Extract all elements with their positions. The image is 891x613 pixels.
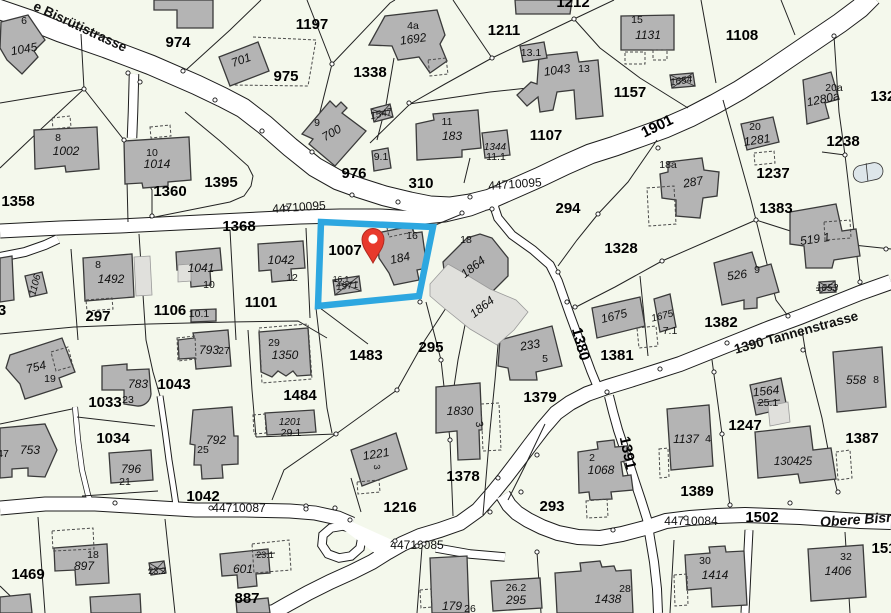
svg-text:7.1: 7.1: [663, 325, 678, 337]
svg-text:1387: 1387: [845, 430, 878, 447]
svg-text:8: 8: [55, 132, 61, 144]
svg-text:44710087: 44710087: [212, 501, 266, 515]
svg-text:1137: 1137: [673, 432, 700, 446]
svg-text:1108: 1108: [726, 27, 759, 44]
svg-text:558: 558: [846, 373, 866, 387]
svg-text:1379: 1379: [523, 389, 556, 406]
svg-text:1382: 1382: [704, 314, 737, 331]
svg-text:1406: 1406: [825, 564, 852, 578]
svg-text:1329: 1329: [870, 88, 891, 105]
svg-text:1653: 1653: [816, 283, 839, 294]
svg-text:3: 3: [372, 464, 382, 470]
svg-text:44710084: 44710084: [664, 514, 718, 528]
svg-text:1389: 1389: [680, 483, 713, 500]
svg-text:1350: 1350: [272, 348, 299, 362]
svg-text:32: 32: [840, 551, 852, 563]
svg-text:18: 18: [460, 234, 472, 246]
svg-text:1157: 1157: [614, 84, 647, 101]
svg-text:9: 9: [314, 117, 320, 129]
svg-text:26: 26: [464, 603, 476, 613]
svg-text:1216: 1216: [383, 499, 416, 516]
svg-text:295: 295: [418, 339, 443, 356]
svg-text:21: 21: [119, 476, 131, 488]
svg-text:23.2: 23.2: [148, 566, 166, 576]
svg-text:13: 13: [578, 63, 590, 75]
svg-text:1043: 1043: [157, 376, 190, 393]
svg-text:12: 12: [286, 272, 298, 284]
svg-text:1247: 1247: [728, 417, 761, 434]
svg-text:1197: 1197: [296, 16, 329, 33]
svg-text:1358: 1358: [1, 193, 34, 210]
svg-text:6: 6: [21, 15, 27, 27]
svg-text:5: 5: [542, 353, 548, 365]
svg-text:8: 8: [95, 259, 101, 271]
svg-text:295: 295: [505, 593, 526, 607]
svg-text:20: 20: [749, 121, 761, 133]
svg-text:887: 887: [234, 590, 259, 607]
svg-text:1007: 1007: [328, 242, 361, 259]
svg-text:1378: 1378: [446, 468, 479, 485]
svg-text:783: 783: [128, 377, 148, 391]
svg-text:1237: 1237: [756, 165, 789, 182]
svg-text:29.1: 29.1: [281, 427, 302, 439]
svg-text:1328: 1328: [604, 240, 637, 257]
svg-text:297: 297: [85, 308, 110, 325]
svg-text:10: 10: [203, 279, 215, 291]
svg-text:1338: 1338: [353, 64, 386, 81]
svg-text:11: 11: [442, 116, 453, 128]
svg-text:1212: 1212: [556, 0, 589, 11]
svg-text:1469: 1469: [11, 566, 44, 583]
svg-text:3: 3: [0, 302, 6, 319]
svg-text:27: 27: [218, 345, 230, 357]
svg-text:1068: 1068: [588, 463, 615, 477]
svg-text:16: 16: [406, 230, 418, 242]
svg-text:1414: 1414: [702, 568, 729, 582]
svg-text:1368: 1368: [222, 218, 255, 235]
svg-text:1502: 1502: [745, 509, 778, 526]
svg-text:1238: 1238: [826, 133, 859, 150]
svg-text:9: 9: [754, 264, 760, 276]
svg-text:1381: 1381: [600, 347, 633, 364]
svg-text:1131: 1131: [635, 28, 661, 42]
svg-text:1042: 1042: [268, 253, 295, 267]
svg-text:25.1: 25.1: [758, 397, 779, 409]
svg-text:1211: 1211: [488, 22, 521, 39]
svg-text:792: 792: [206, 433, 226, 447]
svg-text:1106: 1106: [154, 302, 187, 319]
svg-text:976: 976: [341, 165, 366, 182]
svg-text:16.1: 16.1: [333, 274, 350, 284]
svg-text:1033: 1033: [88, 394, 121, 411]
svg-text:9.1: 9.1: [374, 151, 389, 163]
svg-text:1830: 1830: [447, 404, 474, 418]
svg-text:25: 25: [197, 444, 209, 456]
svg-text:11.1: 11.1: [486, 151, 506, 163]
svg-text:293: 293: [539, 498, 564, 515]
svg-text:1014: 1014: [144, 157, 171, 171]
svg-text:1395: 1395: [204, 174, 237, 191]
svg-text:1383: 1383: [759, 200, 792, 217]
svg-text:10.1: 10.1: [189, 308, 210, 320]
svg-text:183: 183: [442, 129, 462, 143]
svg-text:310: 310: [408, 175, 433, 192]
svg-text:13.1: 13.1: [521, 47, 542, 59]
svg-text:19: 19: [44, 373, 56, 385]
svg-text:1041: 1041: [188, 261, 215, 275]
svg-text:151: 151: [871, 540, 891, 557]
svg-text:18a: 18a: [659, 159, 677, 171]
svg-text:4: 4: [705, 433, 711, 445]
svg-text:1002: 1002: [53, 144, 80, 158]
svg-text:294: 294: [555, 200, 581, 217]
svg-text:30: 30: [699, 555, 711, 567]
svg-text:1360: 1360: [153, 183, 186, 200]
svg-text:1483: 1483: [349, 347, 382, 364]
svg-text:15: 15: [631, 14, 643, 26]
svg-text:897: 897: [74, 559, 95, 573]
svg-text:526: 526: [726, 267, 748, 284]
svg-text:130425: 130425: [774, 456, 813, 468]
svg-text:4a: 4a: [407, 20, 419, 32]
svg-text:796: 796: [121, 462, 141, 476]
svg-text:1484: 1484: [283, 387, 317, 404]
svg-text:8: 8: [873, 374, 879, 386]
svg-text:28: 28: [619, 583, 631, 595]
svg-text:179: 179: [442, 599, 462, 613]
svg-text:974: 974: [165, 34, 191, 51]
svg-text:1438: 1438: [595, 592, 622, 606]
svg-text:753: 753: [20, 443, 40, 457]
svg-text:601: 601: [233, 562, 253, 576]
svg-text:793: 793: [199, 343, 219, 357]
svg-text:23: 23: [122, 394, 134, 406]
svg-text:47: 47: [0, 448, 9, 460]
svg-text:1107: 1107: [530, 127, 563, 144]
svg-text:1101: 1101: [245, 294, 278, 311]
svg-text:975: 975: [273, 68, 298, 85]
svg-text:1034: 1034: [96, 430, 130, 447]
svg-text:1492: 1492: [98, 272, 125, 286]
